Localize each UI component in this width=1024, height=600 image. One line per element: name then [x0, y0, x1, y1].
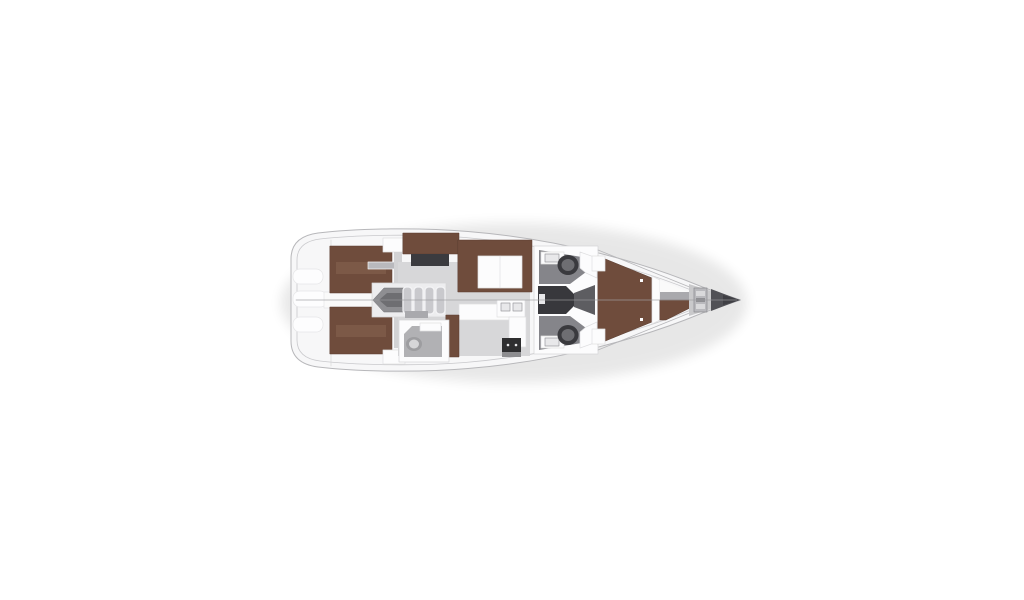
aft-head-counter [420, 323, 441, 331]
head-port-sink [545, 254, 559, 262]
windlass-detail-top [696, 291, 705, 296]
aft-cabin-starboard-cushion [336, 325, 386, 337]
transom-step-2 [293, 291, 327, 307]
head-starboard-toilet-bowl [562, 329, 575, 341]
chart-table [411, 254, 449, 266]
passage-handle [539, 294, 545, 304]
galley-stove-front [502, 352, 521, 357]
head-starboard-sink [545, 338, 559, 346]
yacht-floorplan-canvas [0, 0, 1024, 600]
forward-step [660, 292, 692, 300]
aft-head-toilet-bowl [409, 340, 419, 349]
salon-dinette [458, 240, 532, 292]
galley-sink-left [501, 303, 510, 311]
transom-step-3 [293, 317, 323, 332]
companionway-stair-tread-1 [403, 287, 412, 314]
aft-head [399, 320, 449, 362]
galley-sink-right [513, 303, 522, 311]
yacht-floorplan [0, 0, 1024, 600]
galley-stove [502, 338, 521, 352]
companionway-bottom-step [405, 311, 428, 318]
forward-reading-light-port [640, 279, 643, 282]
forward-shelf-starboard [592, 329, 605, 344]
companionway [372, 283, 446, 318]
companionway-stair-tread-2 [414, 287, 423, 314]
forward-shelf-port [592, 256, 605, 271]
aft-cabin-port-cabinet [383, 238, 405, 252]
windlass-detail-bottom [696, 304, 705, 309]
nav-seat [403, 233, 459, 254]
head-port-toilet-bowl [562, 259, 575, 271]
galley-stove-knob-1 [507, 344, 510, 347]
forward-reading-light-starboard [640, 318, 643, 321]
transom-step-1 [293, 269, 323, 284]
companionway-stair-tread-4 [436, 287, 445, 314]
galley-stove-knob-2 [515, 344, 518, 347]
companionway-stair-tread-3 [425, 287, 434, 314]
